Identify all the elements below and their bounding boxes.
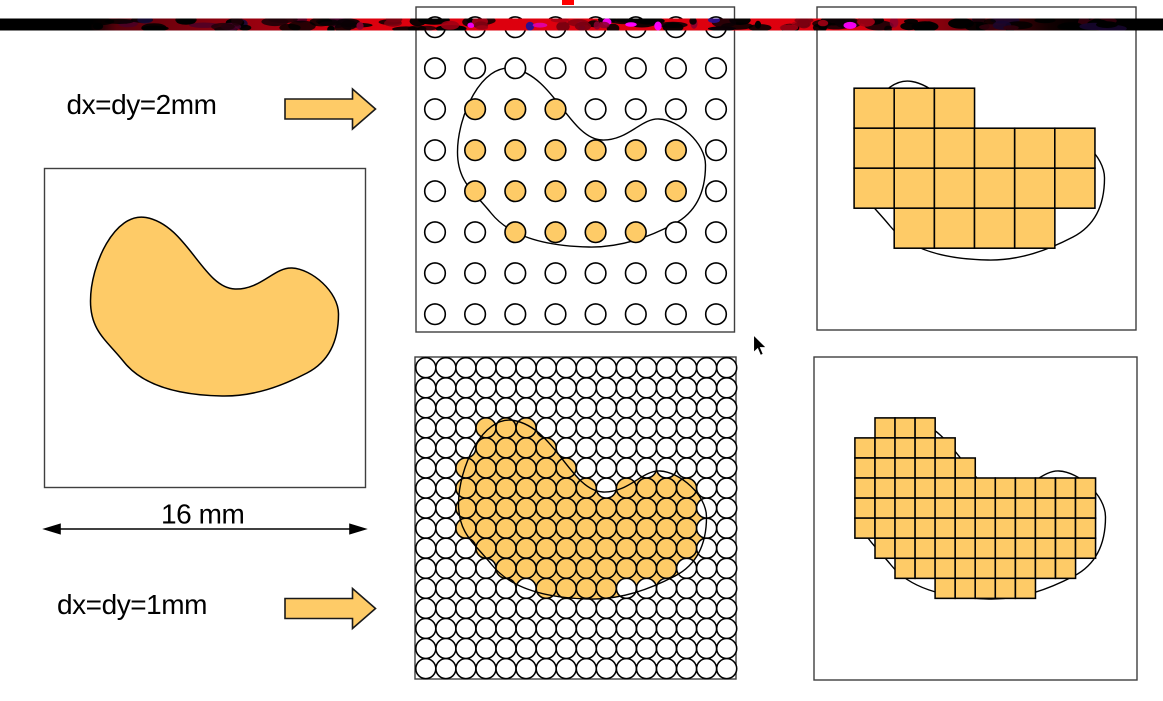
svg-text:dx=dy=2mm: dx=dy=2mm xyxy=(67,89,217,120)
svg-text:dx=dy=1mm: dx=dy=1mm xyxy=(57,589,207,620)
svg-text:16 mm: 16 mm xyxy=(161,499,244,530)
